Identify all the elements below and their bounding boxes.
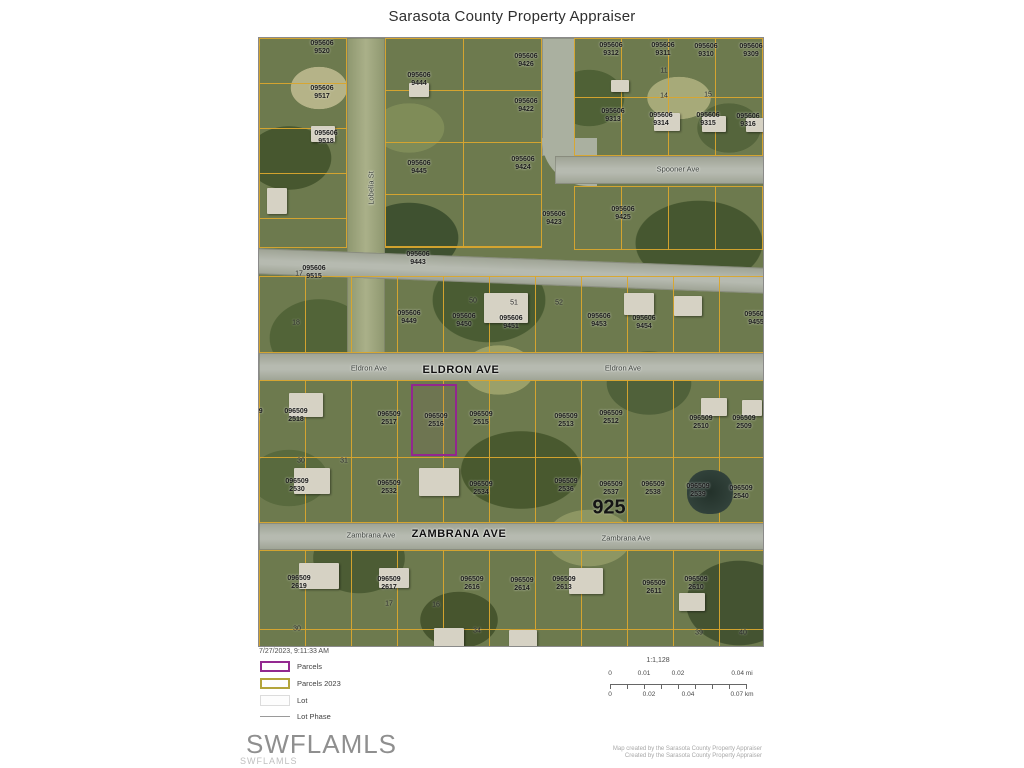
page-title: Sarasota County Property Appraiser <box>0 8 1024 25</box>
lot-number-label: 52 <box>555 300 563 307</box>
parcel-number-label: 095606 9517 <box>297 85 347 101</box>
parcel-number-label: 095606 9316 <box>723 113 764 129</box>
parcel-number-label: 095606 9518 <box>301 130 351 146</box>
parcel-number-label: 096509 2509 <box>719 415 764 431</box>
parcel-number-label: 096509 2610 <box>671 576 721 592</box>
parcel-number-label: 096509 2613 <box>539 576 589 592</box>
parcel-number-label: 096509 2516 <box>411 413 461 429</box>
building <box>701 398 727 416</box>
parcel-number-label: 095606 9423 <box>529 211 579 227</box>
parcel-number-label: 095606 9525 <box>258 41 272 57</box>
lot-number-label: 50 <box>469 298 477 305</box>
street-label: Eldron Ave <box>351 364 387 373</box>
attribution-line: Map created by the Sarasota County Prope… <box>613 746 762 753</box>
building <box>742 400 762 416</box>
street-label: Lobelia St <box>367 171 376 204</box>
parcel-number-label: 096509 2617 <box>364 576 414 592</box>
parcel-number-label: 095606 9425 <box>598 206 648 222</box>
parcel-number-label: 095606 9443 <box>393 251 443 267</box>
parcel-number-label: 096509 2513 <box>541 413 591 429</box>
street-label: ZAMBRANA AVE <box>412 528 507 540</box>
parcel-grid-block <box>385 38 542 248</box>
scale-km-label: 0.07 km <box>730 691 753 698</box>
lot-number-label: 18 <box>292 320 300 327</box>
parcels-swatch <box>260 661 290 672</box>
plat-number: 925 <box>592 497 625 520</box>
parcel-number-label: 095606 9314 <box>636 112 686 128</box>
building <box>267 188 287 214</box>
swflamls-watermark-small: SWFLAMLS <box>240 756 298 766</box>
lot-number-label: 30 <box>297 458 305 465</box>
parcel-number-label: 095606 9313 <box>588 108 638 124</box>
attribution-line: Created by the Sarasota County Property … <box>613 753 762 760</box>
parcel-number-label: 096509 2518 <box>271 408 321 424</box>
parcel-number-label: 096509 2536 <box>541 478 591 494</box>
scale-km-label: 0.02 <box>643 691 656 698</box>
lot-number-label: 16 <box>432 602 440 609</box>
parcel-number-label: 095606 9450 <box>439 313 489 329</box>
road-eldron-ave <box>259 353 764 381</box>
lot-phase-line-swatch <box>260 716 290 717</box>
scale-ratio: 1:1,128 <box>628 657 688 664</box>
parcel-number-label: 095606 9422 <box>501 98 551 114</box>
lot-number-label: 34 <box>473 628 481 635</box>
parcel-number-label: 095606 9449 <box>384 310 434 326</box>
map-timestamp: 7/27/2023, 9:11:33 AM <box>259 648 329 655</box>
parcel-number-label: 095606 9451 <box>486 315 536 331</box>
legend-item-lot-phase: Lot Phase <box>260 709 331 723</box>
map-attribution: Map created by the Sarasota County Prope… <box>613 746 762 760</box>
legend-item-parcels-2023: Parcels 2023 <box>260 676 341 690</box>
scale-mi-label: 0 <box>608 670 612 677</box>
parcel-number-label: 096509 2619 <box>274 575 324 591</box>
parcel-number-label: 095606 9312 <box>586 42 636 58</box>
parcel-number-label: 095606 9309 <box>726 43 764 59</box>
parcel-number-label: 096509 2616 <box>447 576 497 592</box>
lot-number-label: 40 <box>739 630 747 637</box>
parcel-number-label: 095606 9445 <box>394 160 444 176</box>
lot-number-label: 11 <box>660 68 667 75</box>
lot-number-label: 31 <box>340 458 348 465</box>
aerial-parcel-map: 925 095606 9525095606 9520095606 9517095… <box>258 37 764 647</box>
lot-number-label: 17 <box>295 271 303 278</box>
street-label: Eldron Ave <box>605 364 641 373</box>
lot-number-label: 30 <box>293 626 301 633</box>
legend-label: Lot Phase <box>297 712 331 721</box>
parcel-number-label: 095606 9424 <box>498 156 548 172</box>
parcel-number-label: 095606 9444 <box>394 72 444 88</box>
legend-label: Lot <box>297 696 307 705</box>
scale-mi-label: 0.01 <box>638 670 651 677</box>
building <box>611 80 629 92</box>
lot-number-label: 51 <box>510 300 518 307</box>
parcel-number-label: 095606 9310 <box>681 43 731 59</box>
legend-label: Parcels 2023 <box>297 679 341 688</box>
parcel-number-label: 096509 2532 <box>364 480 414 496</box>
building <box>679 593 705 611</box>
parcel-number-label: 096509 2515 <box>456 411 506 427</box>
legend-item-parcels: Parcels <box>260 659 322 673</box>
parcel-number-label: 096509 2512 <box>586 410 636 426</box>
lot-number-label: 15 <box>704 92 712 99</box>
street-label: Zambrana Ave <box>602 534 651 543</box>
parcel-number-label: 096509 2517 <box>364 411 414 427</box>
legend-item-lot: Lot <box>260 693 307 707</box>
parcel-number-label: 096509 2538 <box>628 481 678 497</box>
street-label: Spooner Ave <box>657 165 700 174</box>
scale-km-label: 0 <box>608 691 612 698</box>
parcels-2023-swatch <box>260 678 290 689</box>
street-label: ELDRON AVE <box>423 364 500 376</box>
parcel-number-label: 095606 9426 <box>501 53 551 69</box>
street-label: Zambrana Ave <box>347 531 396 540</box>
lot-number-label: 17 <box>385 601 393 608</box>
scale-bar: 1:1,128 0 0.01 0.02 0.04 mi 0 0.02 0.04 … <box>608 657 758 703</box>
scale-mi-label: 0.02 <box>672 670 685 677</box>
road-zambrana-ave <box>259 523 764 550</box>
parcel-number-label: 096509 2534 <box>456 481 506 497</box>
parcel-number-label: 095606 9455 <box>731 311 764 327</box>
parcel-number-label: 095606 9453 <box>574 313 624 329</box>
scale-mi-label: 0.04 mi <box>731 670 752 677</box>
parcel-number-label: 095606 9454 <box>619 315 669 331</box>
parcel-number-label: 096509 2530 <box>272 478 322 494</box>
building <box>509 630 537 647</box>
lot-number-label: 14 <box>660 93 668 100</box>
lot-number-label: 39 <box>695 630 703 637</box>
scale-bar-line <box>610 684 747 689</box>
lot-swatch <box>260 695 290 706</box>
building <box>624 293 654 315</box>
building <box>434 628 464 647</box>
parcel-number-label: 095606 9520 <box>297 40 347 56</box>
scale-km-label: 0.04 <box>682 691 695 698</box>
building <box>674 296 702 316</box>
parcel-number-label: 096509 2540 <box>716 485 764 501</box>
building <box>419 468 459 496</box>
legend-label: Parcels <box>297 662 322 671</box>
